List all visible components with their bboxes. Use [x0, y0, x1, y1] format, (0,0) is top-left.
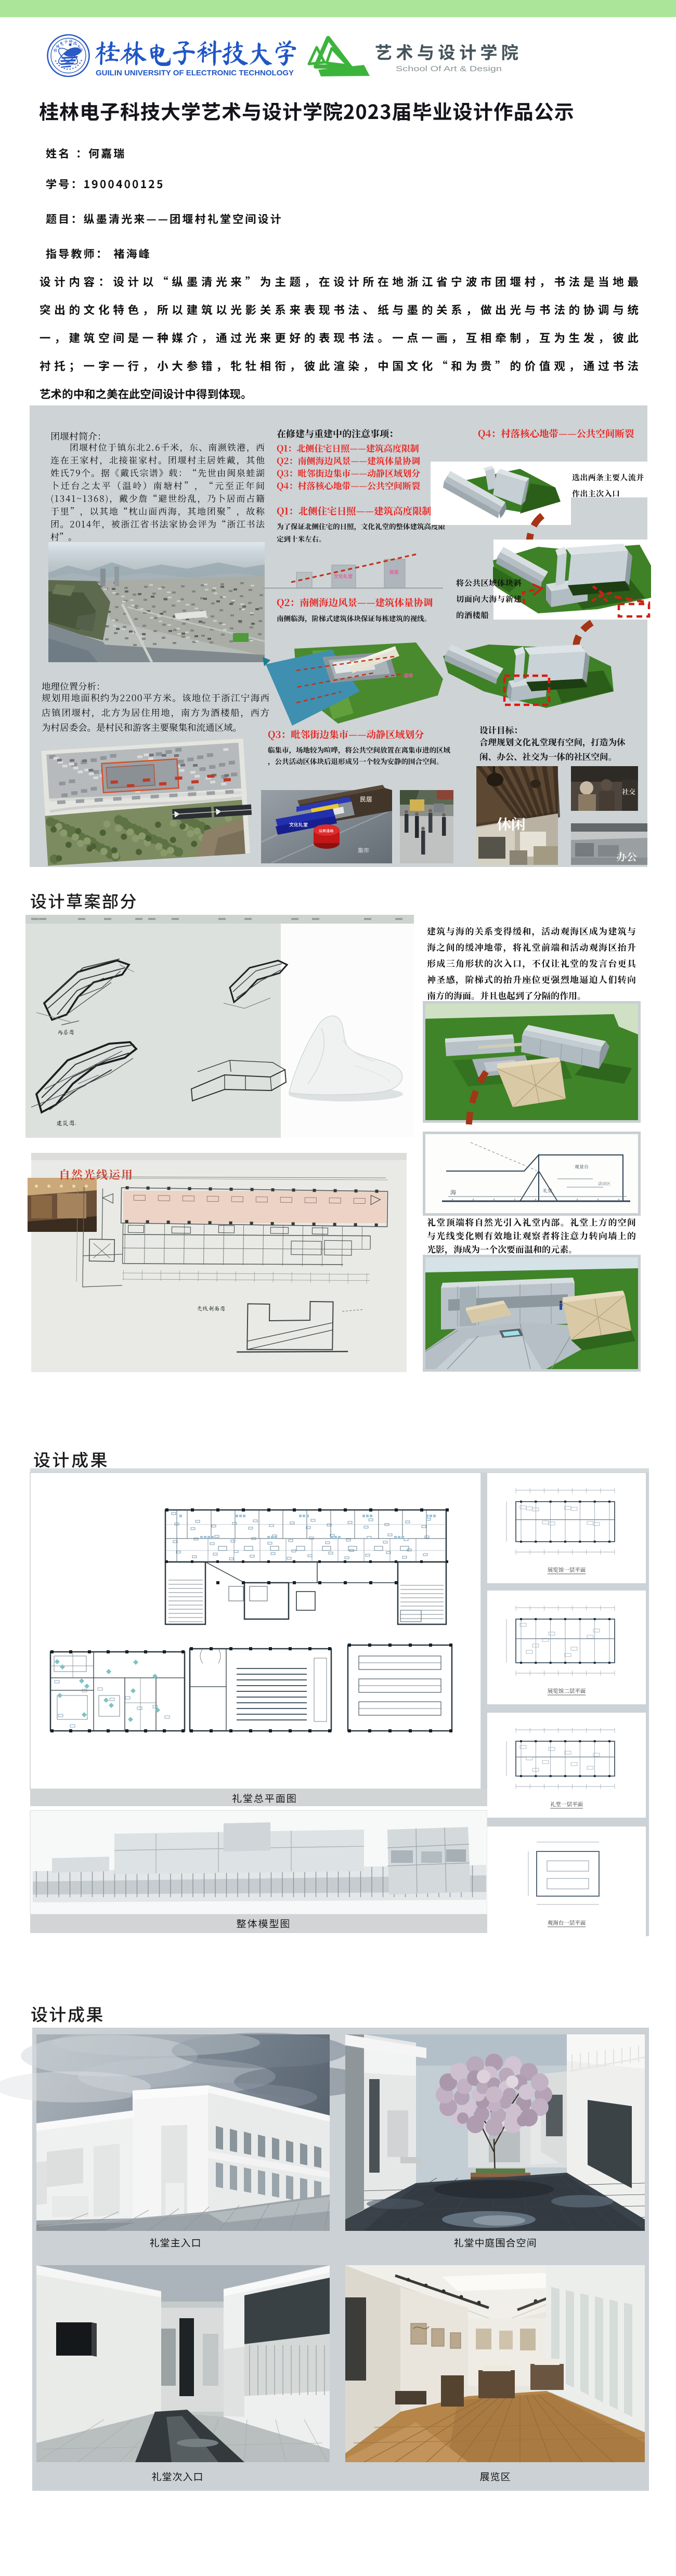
svg-text:School Of Art & Design: School Of Art & Design	[396, 65, 502, 73]
svg-text:GUILIN UNIVERSITY OF ELECTRONI: GUILIN UNIVERSITY OF ELECTRONIC TECHNOLO…	[96, 69, 294, 77]
